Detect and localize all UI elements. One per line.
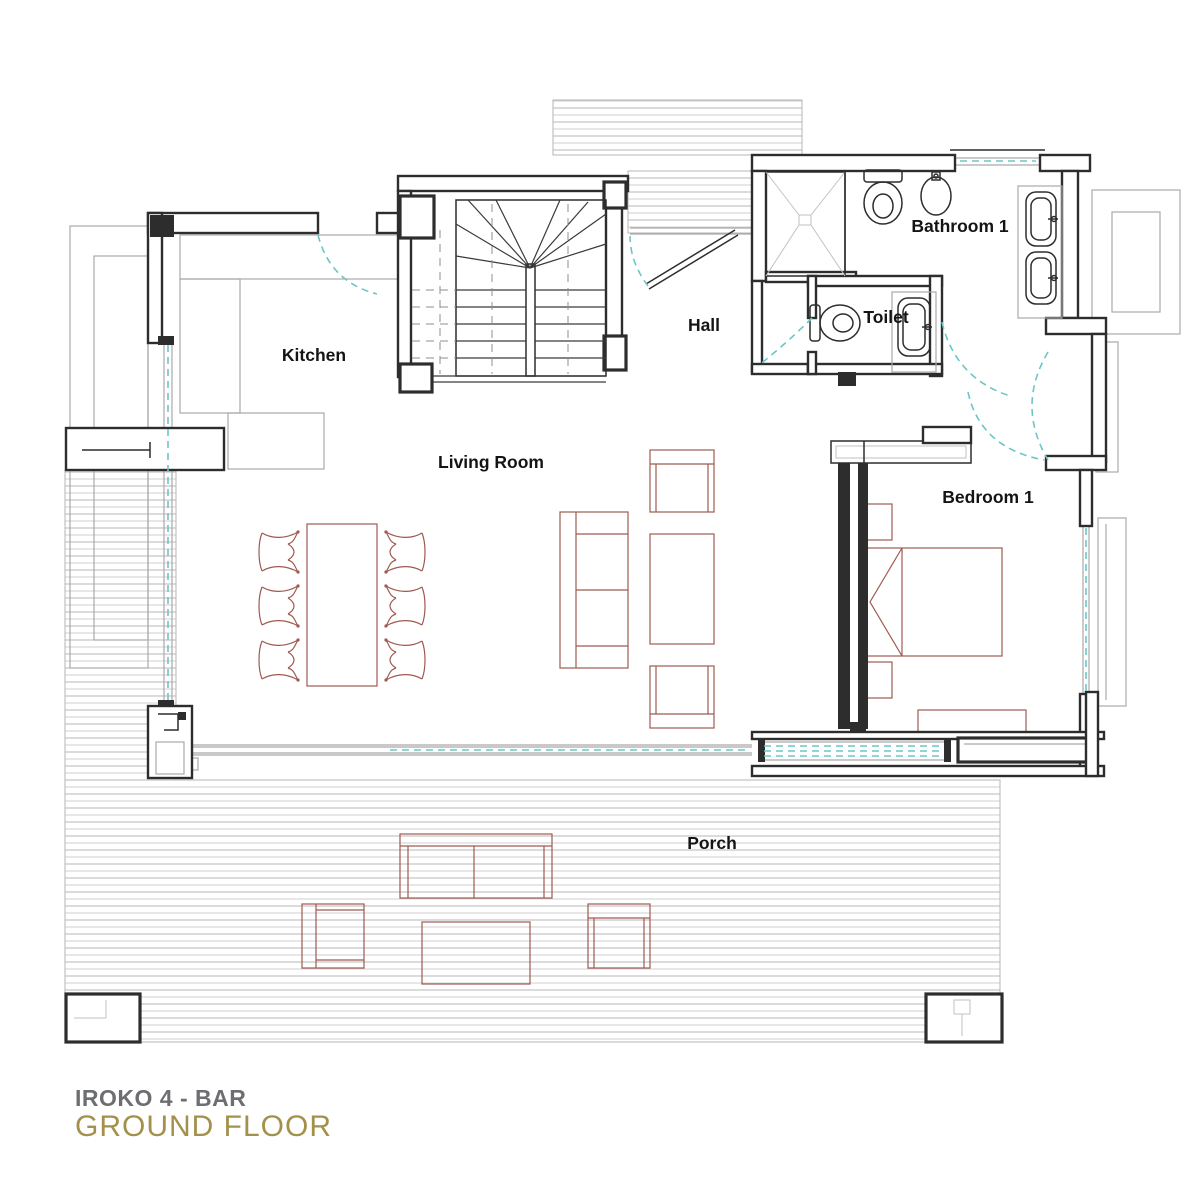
dining-chair xyxy=(384,530,425,573)
sofa-set xyxy=(560,450,714,728)
stair-base-edge xyxy=(433,376,606,382)
bedroom-northeast-wall xyxy=(1046,456,1106,470)
dining-chair xyxy=(259,530,300,573)
bathroom-north-wall xyxy=(1040,155,1090,171)
bedroom-west-wall xyxy=(838,463,850,729)
kitchen-southwest-wall xyxy=(66,428,224,470)
stair-post xyxy=(604,182,626,208)
window-cap xyxy=(944,740,951,762)
room-label-toilet: Toilet xyxy=(863,307,909,327)
stair-east-wall xyxy=(606,191,622,341)
west-wall xyxy=(752,281,762,372)
bed xyxy=(862,548,1002,656)
counter-top-run xyxy=(180,235,408,279)
stair-newel xyxy=(526,264,535,376)
project-title: IROKO 4 - BAR xyxy=(75,1085,246,1111)
dining-chair xyxy=(259,638,300,681)
planter-box xyxy=(958,738,1092,762)
counter-west-run xyxy=(180,279,240,413)
exterior-planters xyxy=(70,190,1180,706)
wardrobe xyxy=(831,441,971,463)
toilet-wc-icon xyxy=(810,305,860,341)
bedroom-window-glazing xyxy=(764,746,944,756)
south-outer-wall xyxy=(752,766,1104,776)
bed-fold xyxy=(870,548,902,656)
wall-nib xyxy=(850,722,866,732)
door-swing xyxy=(630,236,648,286)
wall-nib xyxy=(838,372,856,386)
bidet-icon xyxy=(921,172,951,215)
stair-winders xyxy=(456,200,606,268)
bathroom-west-wall xyxy=(752,171,766,281)
double-sink-vanity xyxy=(1018,186,1062,318)
window-cap xyxy=(758,740,765,762)
window-cap xyxy=(158,336,174,345)
wall-post xyxy=(150,215,174,237)
bathroom-east-wall xyxy=(1062,171,1078,318)
wardrobe-shelf xyxy=(836,446,966,458)
stair-well xyxy=(456,200,606,376)
coffee-table xyxy=(650,534,714,644)
deck-post xyxy=(66,994,140,1042)
room-label-porch: Porch xyxy=(687,833,737,853)
planter xyxy=(1112,212,1160,312)
toilet-west-wall xyxy=(808,276,816,318)
dining-chair xyxy=(259,584,300,627)
armchair xyxy=(650,666,714,728)
dining-chair xyxy=(384,638,425,681)
stair-north-wall xyxy=(398,176,628,191)
room-label-bedroom-1: Bedroom 1 xyxy=(942,487,1034,507)
stair-post xyxy=(604,336,626,370)
window-swing xyxy=(1032,352,1048,460)
corridor-east-wall xyxy=(1092,334,1106,462)
door-swing xyxy=(942,322,1010,396)
door-swing xyxy=(318,235,377,294)
dining-set xyxy=(259,524,425,686)
title-block: IROKO 4 - BAR GROUND FLOOR xyxy=(75,1085,332,1143)
exterior-trim xyxy=(1098,518,1126,706)
staircase xyxy=(412,200,606,382)
floor-plan-svg: Kitchen Living Room Hall Bathroom 1 Toil… xyxy=(0,0,1200,1200)
room-label-living-room: Living Room xyxy=(438,452,544,472)
shower xyxy=(766,172,845,276)
bathroom-south-wall xyxy=(1046,318,1106,334)
southeast-corner xyxy=(1086,692,1098,776)
bedroom-west-wall xyxy=(858,463,868,729)
armchair xyxy=(650,450,714,512)
kitchen-island xyxy=(228,413,324,469)
floor-title: GROUND FLOOR xyxy=(75,1110,332,1143)
room-label-bathroom-1: Bathroom 1 xyxy=(911,216,1009,236)
dining-chair xyxy=(384,584,425,627)
stair-post xyxy=(400,364,432,392)
room-label-kitchen: Kitchen xyxy=(282,345,346,365)
entry-deck-lower xyxy=(628,171,752,233)
wc-icon xyxy=(864,170,902,224)
dining-table xyxy=(307,524,377,686)
door-swing xyxy=(758,318,812,366)
bedroom-furniture xyxy=(862,504,1026,734)
toilet-north-wall xyxy=(808,276,942,286)
stair-post xyxy=(400,196,434,238)
room-label-hall: Hall xyxy=(688,315,720,335)
wardrobe-wall xyxy=(923,427,971,443)
closet-wall xyxy=(752,364,808,374)
entry-door-leaf xyxy=(646,230,738,289)
stair-treads-left xyxy=(456,290,526,358)
bed-bench xyxy=(918,710,1026,734)
toilet-west-wall xyxy=(808,352,816,374)
bedroom-east-wall xyxy=(1080,470,1092,526)
fireplace xyxy=(148,706,192,778)
deck-post xyxy=(926,994,1002,1042)
stair-treads-right xyxy=(535,290,606,358)
stair-walk-line xyxy=(440,204,568,374)
entry-deck-upper xyxy=(553,100,802,155)
stair-dashed-treads xyxy=(412,290,456,358)
floor-plan-page: Kitchen Living Room Hall Bathroom 1 Toil… xyxy=(0,0,1200,1200)
bathroom-north-wall xyxy=(752,155,955,171)
glazing xyxy=(164,158,1089,770)
